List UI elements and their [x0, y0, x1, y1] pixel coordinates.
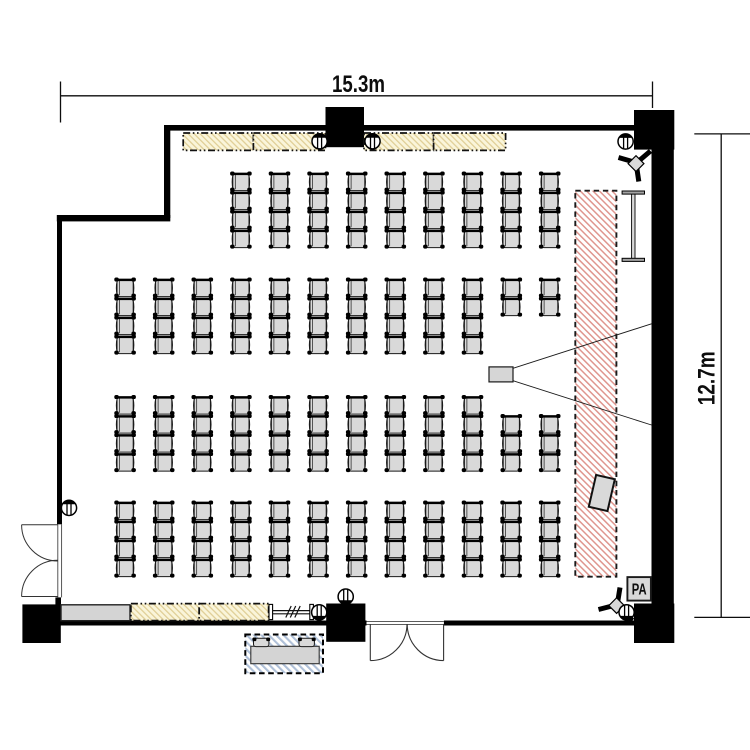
svg-text:15.3m: 15.3m [332, 71, 385, 98]
svg-text:PA: PA [632, 582, 647, 599]
svg-text:12.7m: 12.7m [694, 351, 721, 405]
